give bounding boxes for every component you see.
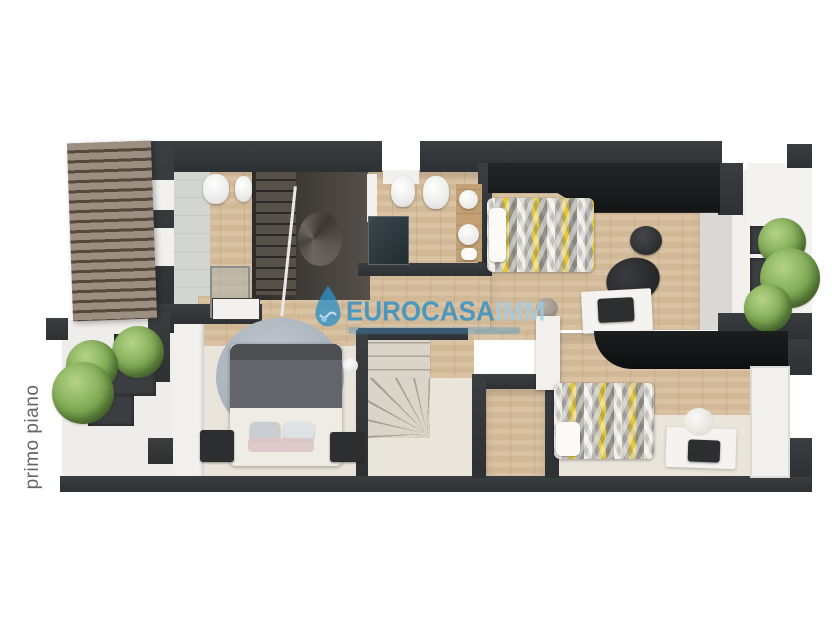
wall-stub-left-mid: [46, 318, 68, 340]
wall-lamp: [343, 358, 358, 373]
top-wall-left: [148, 141, 382, 172]
plant-left-3: [52, 362, 114, 424]
bidet-1: [235, 176, 252, 202]
below-stairs-floor: [368, 438, 430, 478]
wall-stub-top-right: [787, 144, 812, 168]
wall-stub-left-low: [148, 438, 173, 464]
sink-round-2: [458, 224, 479, 245]
wall-stub-right-top: [718, 163, 743, 215]
floor-plan-render: EUROCASAIMM primo piano: [0, 0, 840, 630]
spiral-stair-fan: [298, 212, 342, 266]
bed-2-pillow: [556, 422, 580, 456]
laptop-2: [688, 439, 721, 462]
watermark: EUROCASAIMM: [312, 284, 542, 340]
closet-left-wall: [472, 374, 486, 478]
toilet-2: [423, 176, 449, 209]
master-throw-blanket: [248, 438, 314, 452]
floor-label: primo piano: [22, 362, 46, 512]
sink-round-1: [459, 190, 478, 209]
nightstand-left: [200, 430, 234, 462]
stair-landing-cream: [430, 378, 474, 478]
left-wall-window-2: [152, 228, 174, 266]
pouf-2: [684, 408, 714, 436]
bed-1-pillow: [489, 208, 506, 262]
watermark-brand: EUROCASAIMM: [346, 295, 545, 328]
lower-stair-winders: [368, 378, 430, 440]
laptop-1: [597, 297, 634, 323]
towels: [461, 248, 477, 260]
master-bed-duvet: [230, 344, 342, 408]
pouf-1: [630, 226, 662, 255]
watermark-brand-main: EUROCASA: [346, 295, 495, 327]
left-wall-window-1: [152, 180, 174, 210]
toilet-1: [203, 174, 229, 204]
shower-2: [368, 216, 409, 265]
plant-left-1: [112, 326, 164, 378]
watermark-brand-suffix: IMM: [495, 295, 546, 327]
watermark-tagline-bar: [348, 327, 520, 334]
bottom-wall: [60, 476, 812, 492]
nightstand-right: [330, 432, 364, 462]
door-bedroom-2: [750, 366, 790, 478]
wardrobe-2: [594, 331, 788, 369]
pergola-roof: [67, 141, 157, 322]
water-droplet-icon: [312, 284, 344, 330]
closet-floor: [486, 388, 546, 478]
master-wardrobe-panels: [170, 316, 204, 478]
master-door: [212, 298, 260, 320]
bidet-2: [391, 176, 415, 207]
bathroom-2-wall-strip: [367, 174, 377, 222]
plant-right-3: [744, 284, 792, 332]
